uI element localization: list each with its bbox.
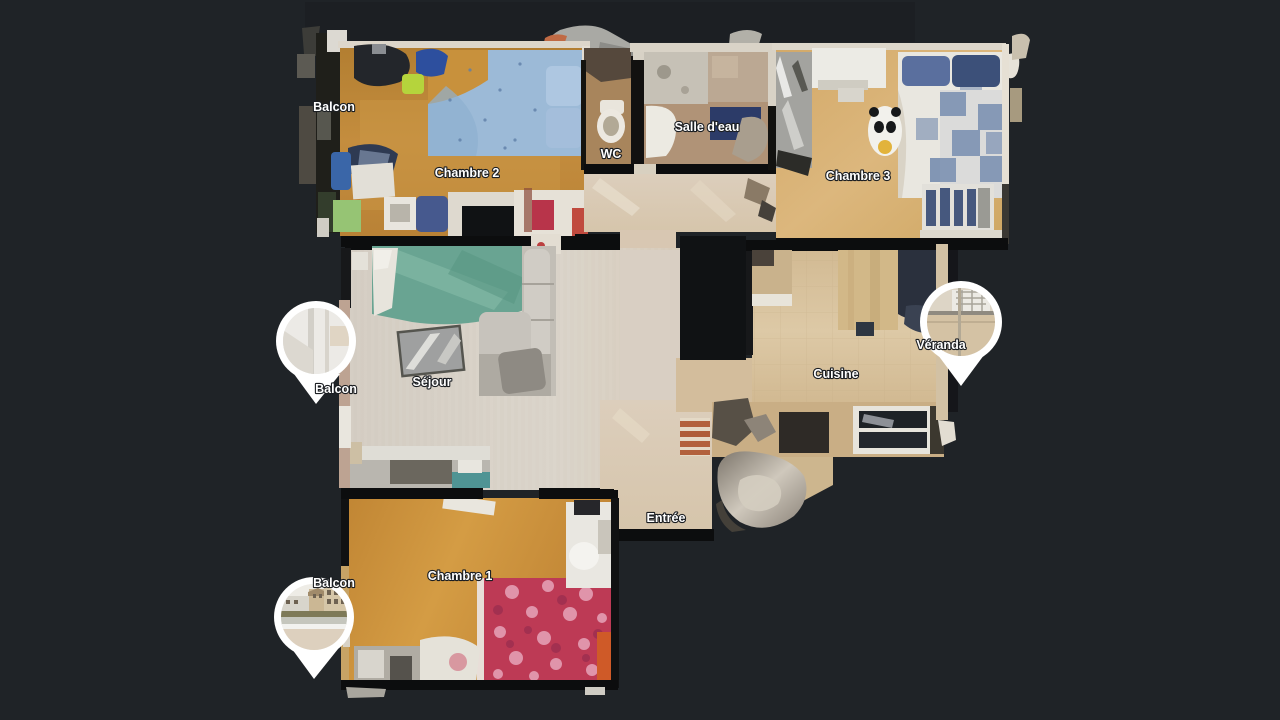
svg-text:Balcon: Balcon xyxy=(313,576,355,590)
svg-text:Chambre 3: Chambre 3 xyxy=(826,169,891,183)
svg-text:Chambre 2: Chambre 2 xyxy=(435,166,500,180)
svg-text:Balcon: Balcon xyxy=(313,100,355,114)
svg-text:WC: WC xyxy=(601,147,622,161)
svg-text:Entrée: Entrée xyxy=(647,511,686,525)
svg-text:Salle d'eau: Salle d'eau xyxy=(675,120,740,134)
svg-text:Cuisine: Cuisine xyxy=(813,367,858,381)
svg-text:Véranda: Véranda xyxy=(916,338,966,352)
svg-text:Séjour: Séjour xyxy=(413,375,452,389)
svg-text:Chambre 1: Chambre 1 xyxy=(428,569,493,583)
svg-text:Balcon: Balcon xyxy=(315,382,357,396)
